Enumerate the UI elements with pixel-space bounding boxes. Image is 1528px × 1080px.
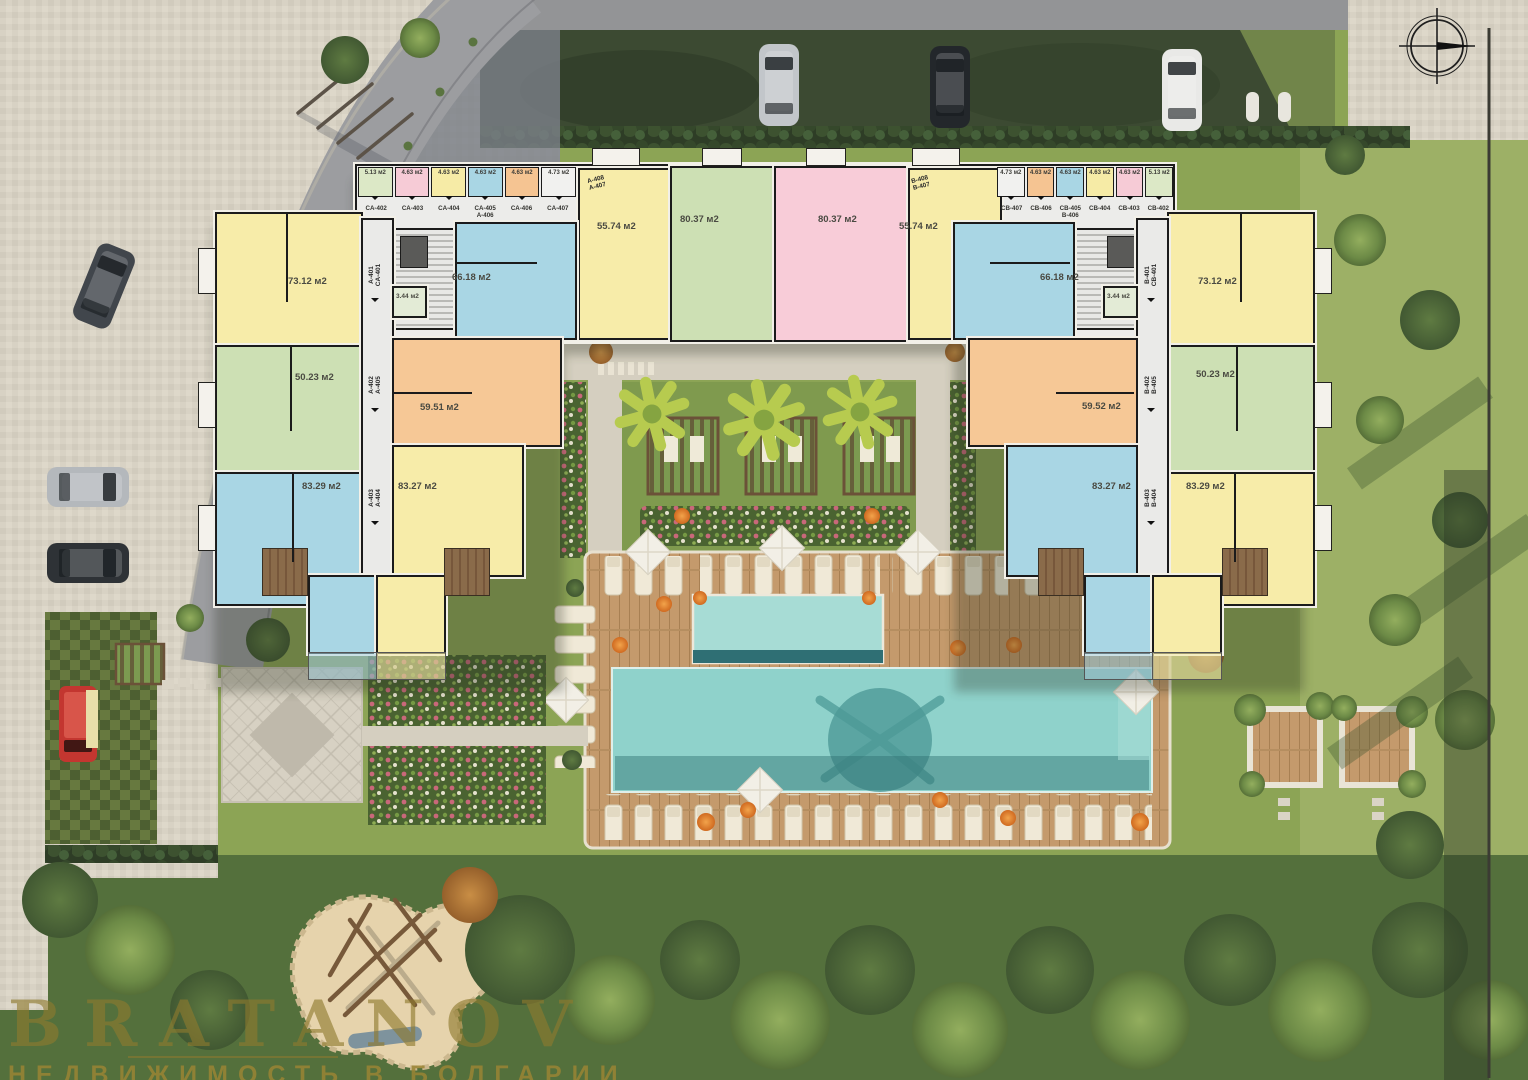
unit-B-403-living	[1152, 575, 1222, 654]
site-plan-render: 5.13 м2 4.63 м2 4.63 м2 4.63 м2 4.63 м2 …	[0, 0, 1528, 1080]
interior-wall	[990, 262, 1070, 264]
brand-rule	[128, 1056, 338, 1058]
storage-cell: 4.63 м2	[1116, 167, 1144, 197]
balcony	[702, 148, 742, 166]
corridor-labels: B-402B-405	[1138, 362, 1164, 408]
storage-area: 4.63 м2	[1060, 170, 1081, 196]
storage-area: 4.73 м2	[548, 170, 569, 196]
brand-tagline: НЕДВИЖИМОСТЬ В БОЛГАРИИ	[8, 1061, 628, 1080]
terrace-open	[1084, 652, 1154, 680]
floor-plan-overlay: 5.13 м2 4.63 м2 4.63 м2 4.63 м2 4.63 м2 …	[0, 0, 1528, 1080]
storage-area: 4.63 м2	[1030, 170, 1051, 196]
interior-wall	[1240, 214, 1242, 302]
terrace-wood	[1038, 548, 1084, 596]
corridor-labels: B-403B-404	[1138, 475, 1164, 521]
unit-B-402	[1167, 345, 1315, 474]
area-label-B-403: 83.29 м2	[1186, 481, 1225, 492]
storage-cell: 4.63 м2	[1086, 167, 1114, 197]
balcony	[592, 148, 640, 166]
interior-wall	[292, 474, 294, 562]
unit-A-403-living	[308, 575, 378, 654]
interior-wall	[290, 347, 292, 431]
corridor-labels: A-403A-404	[362, 475, 388, 521]
storage-CB-401	[1103, 286, 1138, 318]
storage-area: 4.63 м2	[438, 170, 459, 196]
storage-area: 4.73 м2	[1000, 170, 1021, 196]
storage-cell: 4.63 м2	[1027, 167, 1055, 197]
area-label-B-408: 80.37 м2	[818, 214, 857, 225]
balcony	[912, 148, 960, 166]
storage-code: CA-402	[358, 206, 394, 219]
storage-row-east: 4.73 м2 4.63 м2 4.63 м2 4.63 м2 4.63 м2 …	[997, 167, 1173, 197]
area-label-A-405: 59.51 м2	[420, 402, 459, 413]
terrace-open	[308, 652, 378, 680]
storage-cell: 5.13 м2	[358, 167, 393, 197]
storage-code: CB-407	[997, 206, 1026, 219]
storage-code: CA-403	[394, 206, 430, 219]
area-label-B-405: 59.52 м2	[1082, 401, 1121, 412]
storage-code: CB-405B-406	[1056, 206, 1085, 219]
terrace-wood	[1222, 548, 1268, 596]
storage-cell: 4.63 м2	[468, 167, 503, 197]
area-label-B-401: 73.12 м2	[1198, 276, 1237, 287]
storage-code: CB-404	[1085, 206, 1114, 219]
balcony	[1314, 382, 1332, 428]
corridor-labels: A-401CA-401	[362, 252, 388, 298]
storage-code: CA-405A-406	[467, 206, 503, 219]
terrace-wood	[262, 548, 308, 596]
unit-A-404-living	[376, 575, 446, 654]
storage-labels-east: CB-407 CB-406 CB-405B-406 CB-404 CB-403 …	[997, 206, 1173, 219]
corridor-labels: B-401CB-401	[1138, 252, 1164, 298]
interior-wall	[1236, 347, 1238, 431]
area-label-A-403: 83.29 м2	[302, 481, 341, 492]
area-label-CA-401: 3.44 м2	[396, 293, 419, 300]
balcony	[198, 505, 216, 551]
storage-code: CB-402	[1144, 206, 1173, 219]
storage-code: CB-403	[1114, 206, 1143, 219]
area-label-CB-401: 3.44 м2	[1107, 293, 1130, 300]
area-label-A-407: 55.74 м2	[597, 221, 636, 232]
terrace-open	[1152, 652, 1222, 680]
interior-wall	[1234, 474, 1236, 562]
unit-B-404-living	[1084, 575, 1154, 654]
storage-cell: 4.63 м2	[505, 167, 540, 197]
area-label-A-408: 80.37 м2	[680, 214, 719, 225]
interior-wall	[286, 214, 288, 302]
storage-cell: 4.73 м2	[541, 167, 576, 197]
storage-cell: 4.73 м2	[997, 167, 1025, 197]
storage-area: 5.13 м2	[1149, 170, 1170, 196]
storage-area: 4.63 м2	[401, 170, 422, 196]
storage-cell: 5.13 м2	[1145, 167, 1173, 197]
balcony	[198, 248, 216, 294]
storage-code: CA-407	[540, 206, 576, 219]
balcony	[1314, 248, 1332, 294]
area-label-A-404: 83.27 м2	[398, 481, 437, 492]
unit-B-408	[774, 166, 910, 342]
area-label-B-402: 50.23 м2	[1196, 369, 1235, 380]
storage-code: CA-404	[431, 206, 467, 219]
terrace-open	[376, 652, 446, 680]
storage-area: 4.63 м2	[475, 170, 496, 196]
storage-cell: 4.63 м2	[431, 167, 466, 197]
interior-wall	[1056, 392, 1134, 394]
storage-labels-west: CA-402 CA-403 CA-404 CA-405A-406 CA-406 …	[358, 206, 576, 219]
interior-wall	[457, 262, 537, 264]
brand-logo-text: BRATANOV	[8, 996, 628, 1054]
balcony	[1314, 505, 1332, 551]
unit-A-402	[215, 345, 363, 474]
storage-cell: 4.63 м2	[1056, 167, 1084, 197]
balcony	[806, 148, 846, 166]
storage-row-west: 5.13 м2 4.63 м2 4.63 м2 4.63 м2 4.63 м2 …	[358, 167, 576, 197]
area-label-A-406: 66.18 м2	[452, 272, 491, 283]
interior-wall	[394, 392, 472, 394]
area-label-B-406: 66.18 м2	[1040, 272, 1079, 283]
unit-A-407	[578, 168, 672, 340]
storage-CA-401	[392, 286, 427, 318]
unit-A-408	[670, 166, 776, 342]
terrace-wood	[444, 548, 490, 596]
area-label-B-404: 83.27 м2	[1092, 481, 1131, 492]
watermark: BRATANOV НЕДВИЖИМОСТЬ В БОЛГАРИИ	[8, 996, 628, 1080]
storage-area: 4.63 м2	[1119, 170, 1140, 196]
storage-cell: 4.63 м2	[395, 167, 430, 197]
storage-area: 5.13 м2	[365, 170, 386, 196]
balcony	[198, 382, 216, 428]
storage-area: 4.63 м2	[1089, 170, 1110, 196]
corridor-labels: A-402A-405	[362, 362, 388, 408]
area-label-A-401: 73.12 м2	[288, 276, 327, 287]
area-label-A-402: 50.23 м2	[295, 372, 334, 383]
storage-code: CB-406	[1026, 206, 1055, 219]
storage-area: 4.63 м2	[511, 170, 532, 196]
area-label-B-407: 55.74 м2	[899, 221, 938, 232]
storage-code: CA-406	[503, 206, 539, 219]
